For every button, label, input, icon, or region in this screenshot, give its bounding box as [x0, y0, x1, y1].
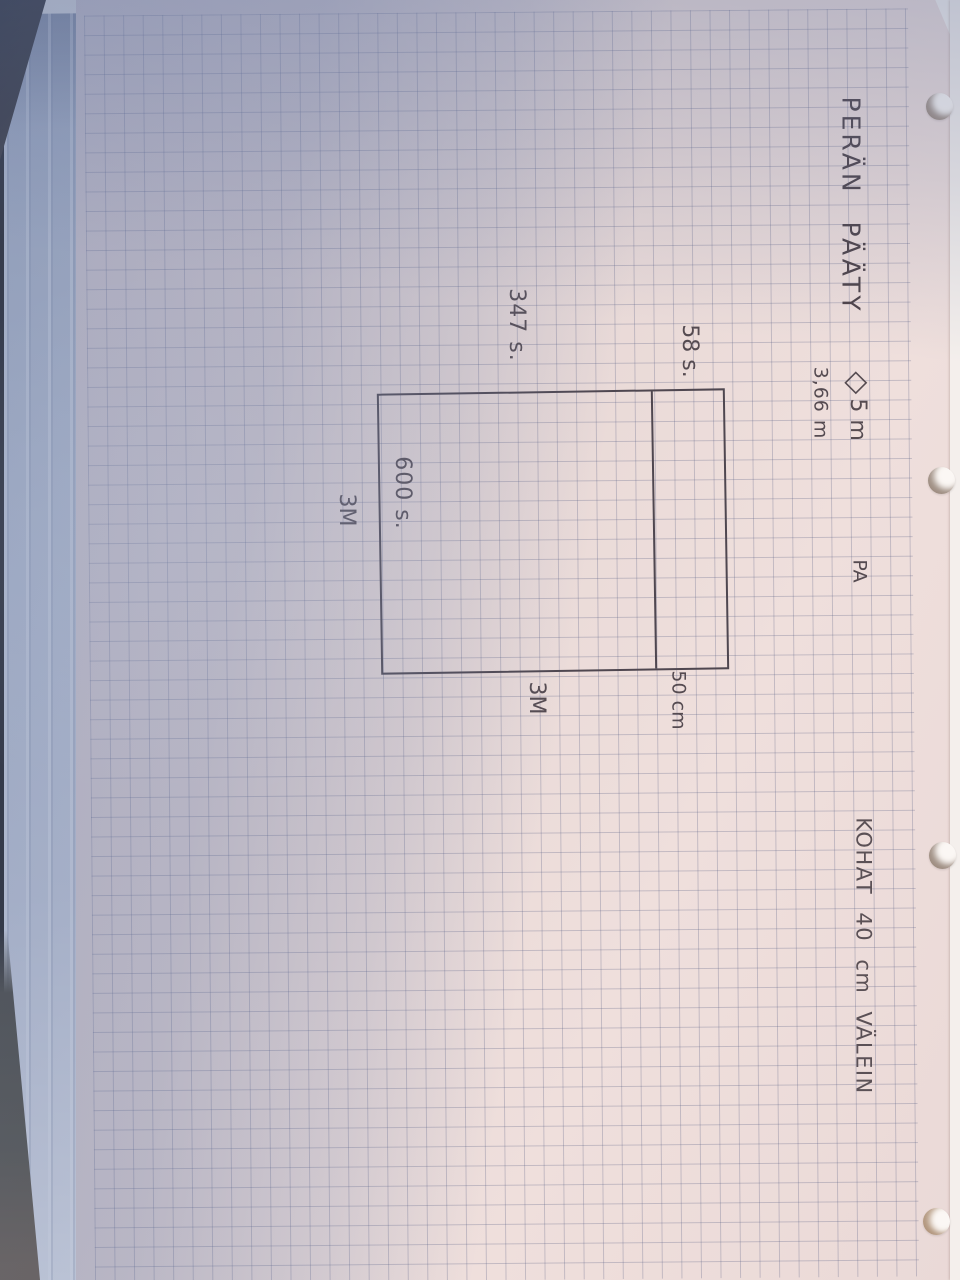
diamond-icon: ◇: [840, 371, 875, 398]
stitch-count-left: 600 s.: [391, 456, 413, 529]
stitch-count-top: 347 s.: [505, 288, 527, 361]
pa-label: PA: [850, 559, 869, 582]
width-meters-bottom: 3M: [525, 682, 547, 715]
sketch-divider-line: [651, 391, 657, 668]
sketch-rectangle: [377, 388, 729, 674]
spacing-instruction: KOHAT 40 cm VÄLEIN: [853, 817, 874, 1095]
strip-width-label: 50 cm: [669, 670, 688, 729]
notebook-photo: PERÄN PÄÄTY ◇5 m 3,66 m PA KOHAT 40 cm V…: [0, 0, 960, 1280]
binder-hole: [928, 467, 955, 494]
width-meters-left: 3M: [335, 494, 357, 527]
diamond-size-label: 5 m: [845, 398, 870, 440]
note-title: PERÄN PÄÄTY: [839, 97, 864, 314]
binder-hole: [926, 93, 953, 120]
length-note: 3,66 m: [811, 367, 830, 440]
stitch-count-top-right: 58 s.: [678, 324, 700, 377]
binder-hole: [923, 1208, 950, 1235]
binder-hole: [929, 842, 956, 869]
page-edge-right: [950, 0, 960, 1280]
diamond-size-note: ◇5 m: [842, 371, 872, 441]
